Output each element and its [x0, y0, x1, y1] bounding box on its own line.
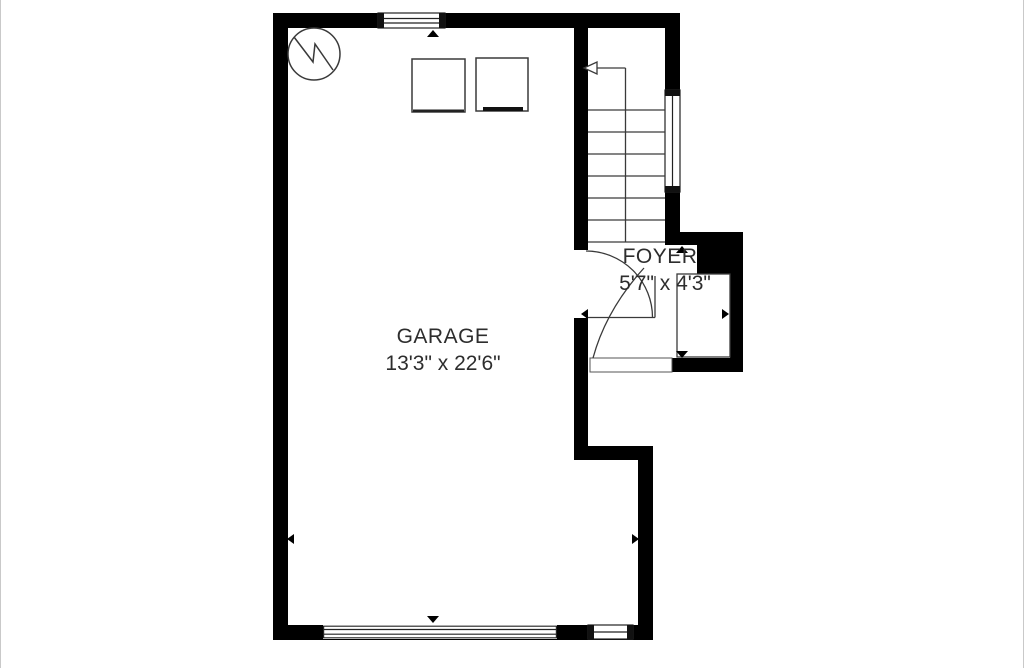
washer-icon: [412, 59, 465, 112]
door-opening: [574, 250, 588, 318]
marker-foyer-top: [676, 246, 688, 253]
door-swing-arc: [586, 251, 653, 318]
wall-foyer-bump-block: [697, 243, 743, 274]
wall-top: [273, 13, 680, 28]
entry-door: [590, 268, 672, 372]
washer-outline: [412, 59, 465, 112]
floor-plan-drawing: [0, 0, 1024, 668]
top-window: [378, 13, 445, 28]
appliances: [412, 58, 528, 112]
wall-foyer-bump-bottom: [672, 358, 743, 372]
marker-garage-door: [427, 616, 439, 623]
water-heater-icon: [288, 28, 340, 80]
entry-opening: [590, 358, 672, 372]
dryer-front-bar: [483, 107, 523, 111]
window-end-cap: [588, 625, 594, 639]
direction-markers: [287, 30, 729, 623]
window-end-cap: [665, 90, 680, 96]
dryer-icon: [476, 58, 528, 111]
dryer-outline: [476, 58, 528, 111]
wall-garage-stair-divider-lower: [574, 318, 588, 460]
garage-overhead-door: [323, 625, 557, 639]
marker-top-window: [427, 30, 439, 37]
marker-garage-right: [632, 534, 639, 544]
window-frame: [378, 13, 445, 28]
wall-left: [273, 13, 288, 640]
wall-right-lower: [638, 460, 653, 640]
garage-door-opening: [323, 625, 557, 639]
front-window: [588, 625, 633, 639]
window-end-cap: [439, 13, 445, 28]
entry-door-swing-arc: [593, 268, 644, 358]
wall-garage-stair-divider-upper: [574, 28, 588, 250]
window-end-cap: [665, 186, 680, 192]
stairs: [584, 62, 665, 242]
wall-jog-horizontal: [588, 446, 653, 460]
stairwell-window: [665, 90, 680, 192]
window-end-cap: [627, 625, 633, 639]
window-end-cap: [378, 13, 384, 28]
marker-garage-left: [287, 534, 294, 544]
wall-closet-right: [730, 274, 743, 358]
floor-plan: GARAGE 13'3" x 22'6" FOYER 5'7" x 4'3": [0, 0, 1024, 668]
